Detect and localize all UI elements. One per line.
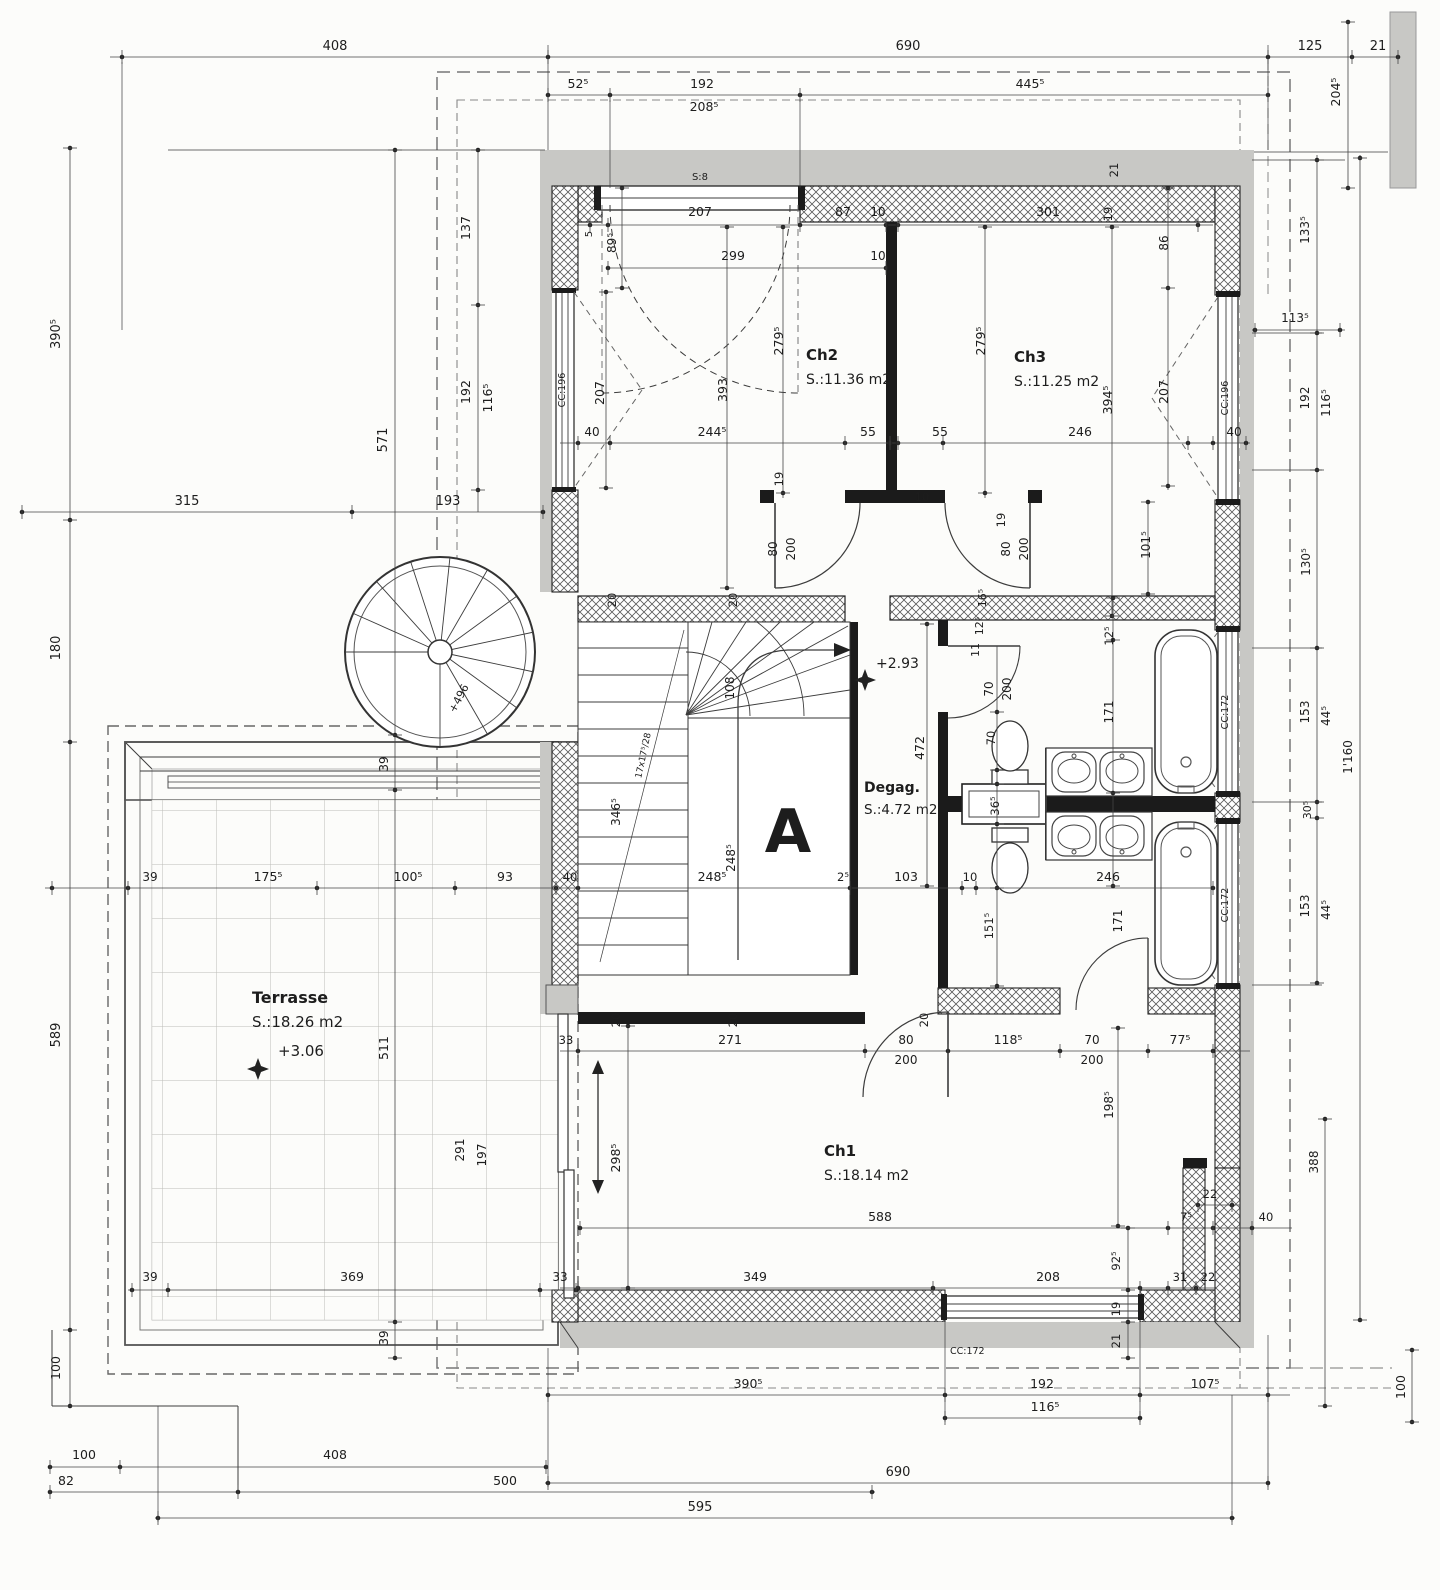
label-89-: 89⁵	[605, 233, 619, 253]
label-193: 193	[436, 494, 461, 509]
label-301: 301	[1036, 204, 1060, 219]
label-21: 21	[1107, 163, 1121, 178]
label-192: 192	[1030, 1376, 1054, 1391]
label-16-: 16⁵	[976, 589, 989, 607]
label-21: 21	[1370, 39, 1387, 54]
label-192: 192	[690, 76, 714, 91]
label-200: 200	[1081, 1053, 1104, 1067]
label-200: 200	[895, 1053, 918, 1067]
wall-render-gray	[546, 985, 578, 1014]
label-s-18-14-m2: S.:18.14 m2	[824, 1168, 909, 1184]
label-terrasse: Terrasse	[252, 988, 328, 1007]
label-70: 70	[1084, 1033, 1099, 1047]
label-153: 153	[1298, 895, 1312, 918]
label-40: 40	[1259, 1210, 1274, 1224]
wall-solid	[594, 186, 601, 210]
label-86: 86	[1157, 235, 1171, 250]
wall-render-gray	[1390, 12, 1416, 188]
label-472: 472	[912, 736, 927, 760]
label-80: 80	[999, 541, 1013, 556]
label-40: 40	[584, 425, 599, 439]
wall-solid	[850, 622, 858, 975]
label-101-: 101⁵	[1139, 531, 1153, 559]
wall-solid	[760, 490, 774, 503]
label-a: A	[765, 797, 812, 867]
label-690: 690	[896, 39, 921, 54]
label-40: 40	[563, 870, 578, 884]
label-390-: 390⁵	[734, 1376, 763, 1391]
outline-rect	[1046, 812, 1152, 860]
wall-hatched	[1148, 988, 1215, 1014]
door-swing-arc	[610, 205, 798, 393]
label-315: 315	[175, 494, 200, 509]
label-10: 10	[870, 205, 885, 219]
label-12-: 12⁵	[1102, 626, 1116, 646]
label-298-: 298⁵	[608, 1144, 623, 1173]
label-30-: 30⁵	[1301, 801, 1314, 819]
label-39: 39	[142, 1270, 157, 1284]
label-103: 103	[894, 869, 918, 884]
label-93: 93	[497, 869, 513, 884]
wall-solid	[938, 812, 948, 988]
wall-hatched	[938, 988, 1060, 1014]
label-s-4-72-m2: S.:4.72 m2	[864, 802, 938, 818]
label-100: 100	[72, 1447, 96, 1462]
label-cc-172: CC:172	[1220, 695, 1231, 730]
label-ch3: Ch3	[1014, 348, 1046, 366]
label-1-160: 1'160	[1341, 740, 1355, 774]
plan-geometry: S:8CC:196CC:196CC:172CC:172CC:172Ch2S.:1…	[20, 12, 1419, 1525]
wall-hatched	[1140, 1290, 1215, 1322]
label-44-: 44⁵	[1319, 900, 1333, 920]
label-390-: 390⁵	[49, 319, 64, 349]
label-113-: 113⁵	[1281, 311, 1309, 325]
marker-shape	[592, 1180, 604, 1194]
wall-hatched	[890, 596, 1215, 620]
wall-hatched	[1215, 186, 1240, 295]
fixture-circle	[428, 640, 452, 664]
label-22: 22	[1203, 1187, 1218, 1201]
label-100: 100	[1393, 1375, 1408, 1399]
label-279-: 279⁵	[973, 327, 988, 356]
label-10: 10	[870, 249, 885, 263]
label-70: 70	[982, 681, 996, 696]
label-7-: 7⁵	[1180, 1210, 1192, 1224]
label-198-: 198⁵	[1102, 1091, 1116, 1119]
wall-hatched	[552, 742, 578, 985]
outline-rect	[962, 784, 1046, 824]
wall-render-gray	[545, 150, 1252, 186]
label-116-: 116⁵	[1031, 1399, 1060, 1414]
label-588: 588	[868, 1209, 892, 1224]
wall-solid	[552, 487, 576, 492]
label-248-: 248⁵	[724, 844, 738, 872]
label-200: 200	[1017, 538, 1031, 561]
label-19: 19	[1109, 1302, 1123, 1317]
label-20: 20	[726, 593, 740, 608]
label-20: 20	[726, 1013, 740, 1028]
label-degag-: Degag.	[864, 780, 920, 796]
wall-render-gray	[540, 150, 552, 592]
label-70: 70	[984, 731, 998, 746]
label-s-18-26-m2: S.:18.26 m2	[252, 1013, 343, 1031]
wall-hatched	[578, 1290, 945, 1322]
label-192: 192	[458, 380, 473, 404]
label-130-: 130⁵	[1299, 548, 1313, 576]
label-20: 20	[917, 1013, 931, 1028]
wall-solid	[798, 186, 805, 210]
label-279-: 279⁵	[771, 327, 786, 356]
label-346-: 346⁵	[609, 798, 623, 826]
label-ch2: Ch2	[806, 346, 838, 364]
label-cc-172: CC:172	[950, 1346, 985, 1357]
label-11: 11	[969, 643, 982, 657]
label-31: 31	[1173, 1270, 1188, 1284]
label-5: 5	[584, 231, 595, 237]
label-246: 246	[1068, 424, 1092, 439]
wall-solid	[1216, 818, 1240, 824]
wall-solid	[1183, 1158, 1207, 1168]
label-192: 192	[1298, 387, 1312, 410]
wall-solid	[1216, 499, 1240, 505]
wall-solid	[1028, 490, 1042, 503]
label-40: 40	[1226, 425, 1241, 439]
label-204-: 204⁵	[1328, 78, 1343, 107]
label-+2-93: +2.93	[876, 656, 919, 672]
label-175-: 175⁵	[254, 869, 283, 884]
label-394-: 394⁵	[1100, 386, 1115, 415]
wall-hatched	[1215, 500, 1240, 630]
label-393: 393	[715, 378, 730, 402]
label-690: 690	[886, 1465, 911, 1480]
label-151-: 151⁵	[982, 912, 996, 939]
label-133-: 133⁵	[1298, 216, 1312, 244]
label-100: 100	[48, 1356, 63, 1380]
label-cc-196: CC:196	[1220, 381, 1231, 416]
wall-render-gray	[540, 742, 552, 1014]
label-349: 349	[743, 1269, 767, 1284]
wall-render-gray	[1240, 150, 1254, 1348]
label-107-: 107⁵	[1191, 1376, 1220, 1391]
label-271: 271	[718, 1032, 742, 1047]
label-200: 200	[784, 538, 798, 561]
label-s-8: S:8	[692, 172, 708, 183]
label-408: 408	[323, 1447, 347, 1462]
wall-render-gray	[560, 1322, 1252, 1348]
label-595: 595	[688, 1500, 713, 1515]
label-20: 20	[609, 1013, 623, 1028]
label-12-: 12⁵	[973, 617, 986, 635]
wall-solid	[552, 288, 576, 293]
label-+3-06: +3.06	[278, 1042, 324, 1060]
label-511: 511	[376, 1036, 391, 1060]
label-44-: 44⁵	[1319, 706, 1333, 726]
plan-line	[574, 390, 642, 488]
label-39: 39	[142, 870, 157, 884]
label-ch1: Ch1	[824, 1142, 856, 1160]
label-55: 55	[860, 424, 876, 439]
label-589: 589	[49, 1023, 64, 1048]
label-408: 408	[323, 39, 348, 54]
wall-solid	[938, 712, 948, 796]
label-20: 20	[605, 593, 619, 608]
wall-solid	[1216, 791, 1240, 797]
label-208: 208	[1036, 1269, 1060, 1284]
floor-plan-page: S:8CC:196CC:196CC:172CC:172CC:172Ch2S.:1…	[0, 0, 1440, 1590]
wall-solid	[1216, 983, 1240, 989]
label-207: 207	[592, 381, 607, 405]
wall-hatched	[1215, 1168, 1240, 1322]
door-swing-arc	[602, 205, 790, 393]
label-118-: 118⁵	[994, 1032, 1023, 1047]
label-369: 369	[340, 1269, 364, 1284]
label-244-: 244⁵	[698, 424, 727, 439]
outline-rect	[1046, 748, 1152, 796]
label-21: 21	[1109, 1334, 1123, 1349]
label-207: 207	[688, 204, 712, 219]
label-100-: 100⁵	[394, 869, 423, 884]
label-s-11-36-m2: S.:11.36 m2	[806, 372, 891, 388]
wall-solid	[941, 1294, 947, 1320]
label-116-: 116⁵	[1319, 389, 1333, 417]
label-s-11-25-m2: S.:11.25 m2	[1014, 374, 1099, 390]
label-108: 108	[723, 677, 737, 700]
label-39: 39	[377, 756, 391, 771]
label-22: 22	[1201, 1270, 1216, 1284]
label-171: 171	[1111, 910, 1125, 933]
label-36-: 36⁵	[988, 796, 1002, 816]
wall-solid	[938, 620, 948, 646]
label-82: 82	[58, 1473, 74, 1488]
label-248-: 248⁵	[698, 869, 727, 884]
wall-solid	[1138, 1294, 1144, 1320]
label-10: 10	[963, 870, 978, 884]
outline-rect	[992, 828, 1028, 842]
label-299: 299	[721, 248, 745, 263]
wall-solid	[845, 490, 945, 503]
wall-hatched	[1215, 793, 1240, 822]
label-197: 197	[475, 1144, 489, 1167]
wall-hatched	[552, 490, 578, 592]
plan-line	[125, 742, 152, 769]
plan-line	[1152, 398, 1218, 498]
label-153: 153	[1298, 701, 1312, 724]
label-52-: 52⁵	[568, 76, 589, 91]
label-19: 19	[994, 513, 1008, 528]
label-19: 19	[1101, 207, 1115, 222]
fixture-ellipse	[992, 843, 1028, 893]
label-500: 500	[493, 1473, 517, 1488]
label-39: 39	[377, 1330, 391, 1345]
marker-shape	[592, 1060, 604, 1074]
wall-solid	[1216, 291, 1240, 297]
label-55: 55	[932, 424, 948, 439]
plan-line	[574, 292, 642, 390]
label-33: 33	[559, 1033, 574, 1047]
label-33: 33	[552, 1270, 567, 1284]
label-cc-172: CC:172	[1220, 888, 1231, 923]
label-291: 291	[453, 1139, 467, 1162]
label-207: 207	[1156, 380, 1171, 404]
outline-rect	[1155, 630, 1217, 793]
wall-solid	[1216, 626, 1240, 632]
door-swing-arc	[1076, 938, 1148, 1010]
label-571: 571	[376, 428, 391, 453]
label-80: 80	[898, 1033, 913, 1047]
label-180: 180	[49, 636, 64, 661]
label-200: 200	[1000, 678, 1014, 701]
wall-solid	[886, 222, 897, 492]
wall-hatched	[552, 186, 578, 290]
wall-hatched	[1215, 985, 1240, 1168]
label-19: 19	[772, 472, 786, 487]
label-125: 125	[1298, 39, 1323, 54]
label-2-: 2⁵	[837, 870, 849, 884]
label-80: 80	[766, 541, 780, 556]
label-87: 87	[835, 204, 851, 219]
wall-hatched	[800, 186, 1215, 222]
label-208-: 208⁵	[690, 99, 719, 114]
label-116-: 116⁵	[480, 384, 495, 413]
floor-plan-drawing: S:8CC:196CC:196CC:172CC:172CC:172Ch2S.:1…	[0, 0, 1440, 1590]
label-137: 137	[458, 216, 473, 240]
label-77-: 77⁵	[1170, 1032, 1191, 1047]
label-171: 171	[1102, 701, 1116, 724]
label-cc-196: CC:196	[557, 373, 568, 408]
label-10: 10	[915, 490, 930, 504]
label-92-: 92⁵	[1109, 1251, 1123, 1271]
label-388: 388	[1307, 1151, 1321, 1174]
label-246: 246	[1096, 869, 1120, 884]
label-445-: 445⁵	[1016, 76, 1045, 91]
